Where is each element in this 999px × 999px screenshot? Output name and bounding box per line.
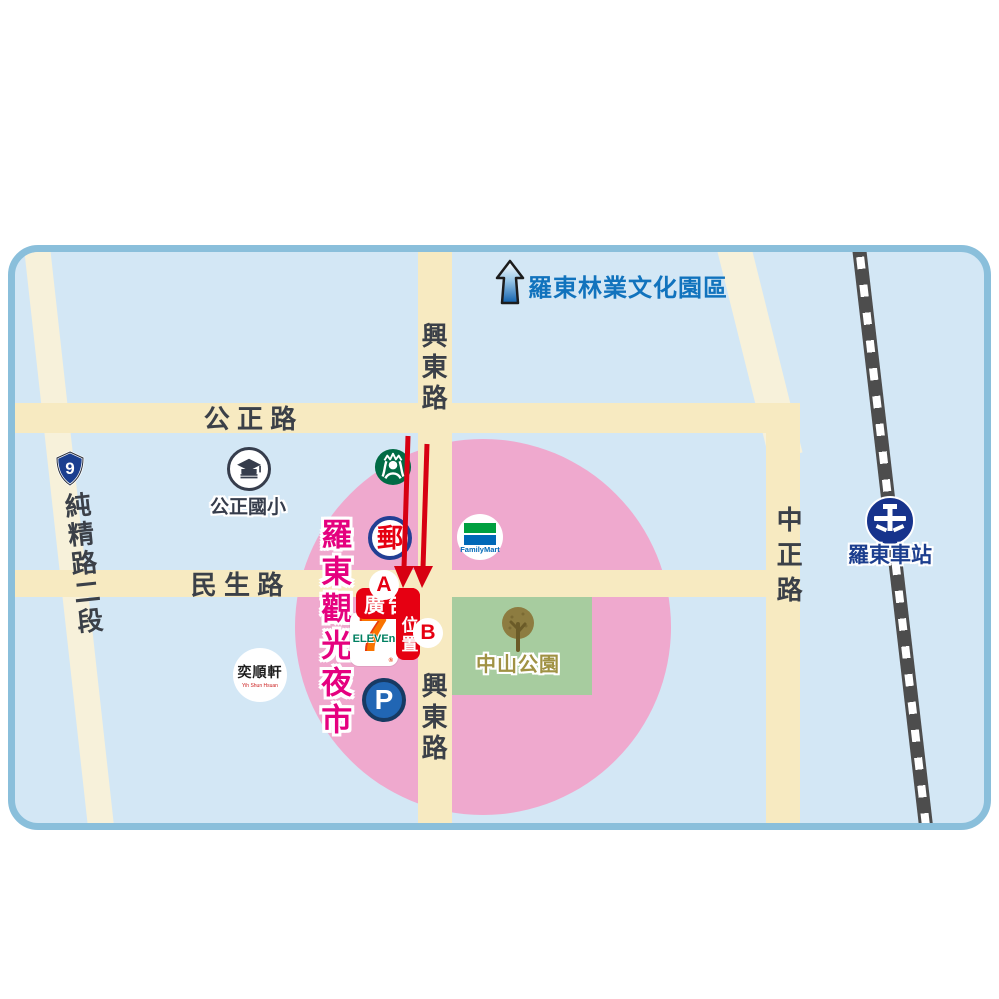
bakery-name: 奕順軒 [238,662,283,682]
tree-icon [500,604,536,654]
marker-a: A [369,570,399,600]
seven-eleven-icon: 7 ELEVEn ® [350,612,398,666]
seven-eleven-registered-mark: ® [389,658,393,664]
familymart-label: FamilyMart [460,545,500,554]
graduation-cap-icon [232,452,266,486]
bakery-subtext: Yih Shun Hsuan [242,683,278,689]
road-label-minsheng: 民 生 路 [137,571,337,599]
road-label-xingdong-bottom: 興東路 [419,672,447,765]
school-label: 公正國小 [183,492,313,519]
up-arrow-icon [493,258,527,306]
zhongshan-park-label: 中山公園 [458,648,578,677]
bakery-icon: 奕順軒 Yih Shun Hsuan [233,648,287,702]
road-label-zhongzheng: 中正路 [774,506,802,611]
seven-eleven-word: ELEVEn [350,633,398,645]
familymart-blue-bar [464,535,496,545]
parking-icon: P [362,678,406,722]
highway-number: 9 [65,459,74,478]
school-icon [227,447,271,491]
highway-9-shield-icon: 9 [53,450,87,488]
forestry-park-label: 羅東林業文化園區 [528,268,728,303]
parking-letter: P [375,686,394,714]
night-market-label: 羅東觀光夜市 [315,518,352,740]
familymart-green-bar [464,523,496,533]
page: { "map": { "colors": { "water_bg": "#d3e… [0,0,999,999]
station-label: 羅東車站 [840,539,940,569]
ad-arrows-icon [385,422,445,592]
road-label-xingdong-top: 興東路 [419,322,447,415]
map-canvas: 公 正 路 民 生 路 興東路 興東路 中正路 純精路二段 羅東林業文化園區 9 [8,245,991,830]
familymart-icon: FamilyMart [457,514,503,560]
road-label-gongzheng: 公 正 路 [150,405,350,433]
marker-b: B [413,618,443,648]
road-zhongzheng [766,425,800,830]
map-layer: 公 正 路 民 生 路 興東路 興東路 中正路 純精路二段 羅東林業文化園區 9 [15,252,984,823]
